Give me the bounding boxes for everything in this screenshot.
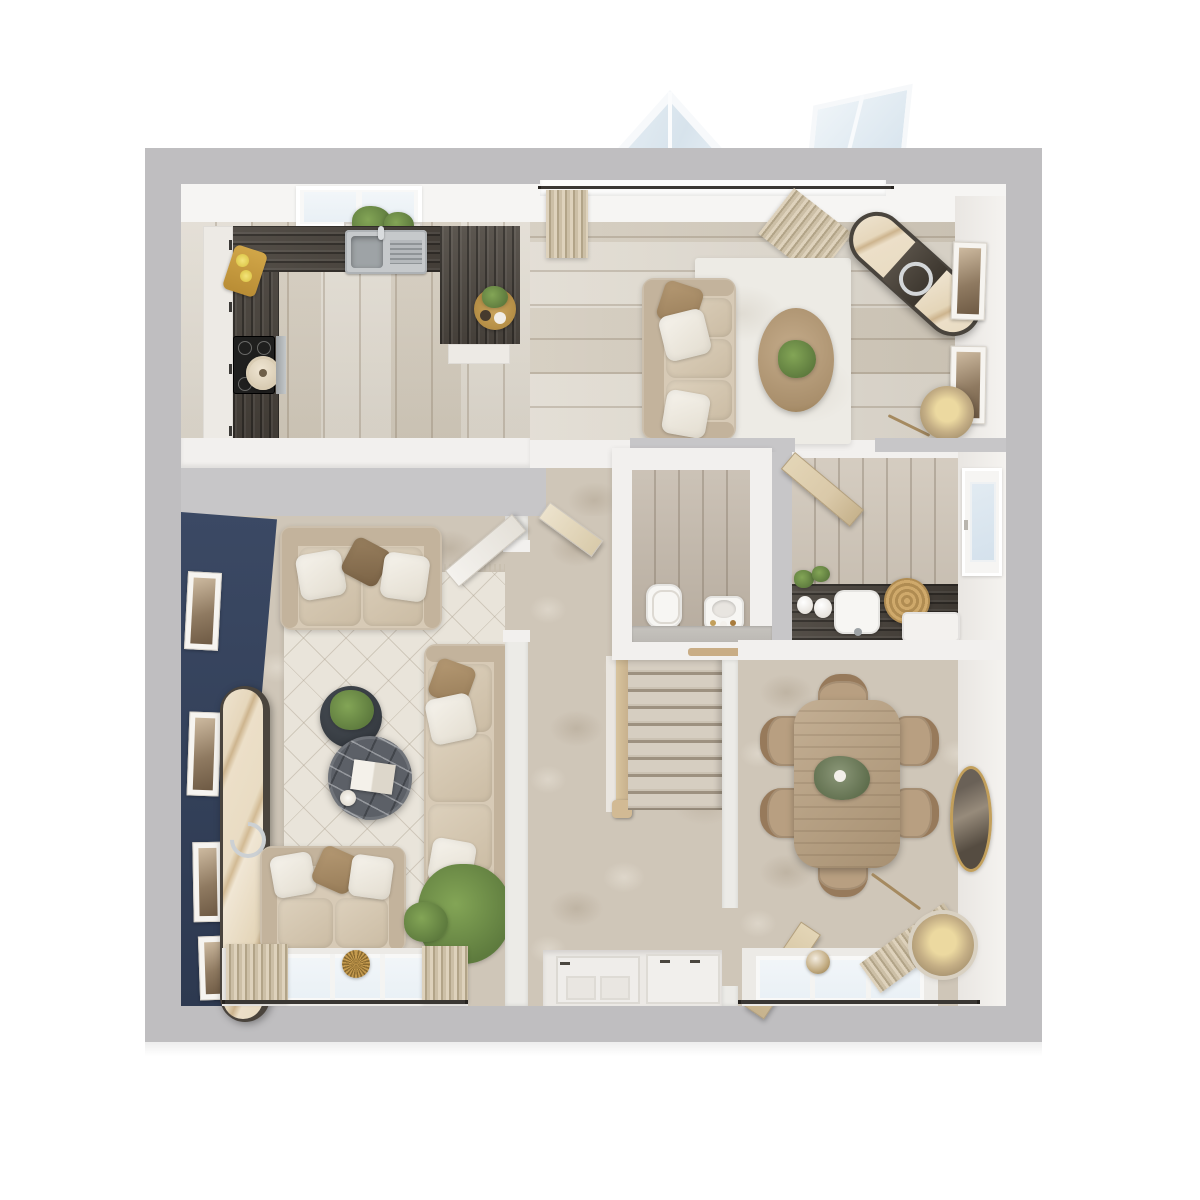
living-sofa-top-arm-left — [282, 528, 298, 628]
family-curtain-left — [546, 190, 588, 258]
family-curtain-rod — [538, 186, 894, 189]
living-door-opening — [505, 552, 528, 630]
living-wall-frame-1-art — [190, 577, 215, 644]
living-curtain-right — [422, 946, 468, 1002]
dining-curtain-rod — [738, 1000, 980, 1004]
living-wall-frame-1 — [184, 571, 222, 651]
utility-vase-1 — [797, 596, 813, 614]
front-door-handle — [560, 962, 570, 965]
living-wall-frame-2 — [187, 711, 222, 796]
living-curtain-rod — [222, 1000, 468, 1004]
front-door-panel-2 — [600, 976, 630, 1000]
hall-cupboard — [646, 954, 720, 1004]
utility-plant-2 — [812, 566, 830, 582]
coffee-table-candle — [340, 790, 356, 806]
utility-sink-faucet — [854, 628, 862, 636]
lemon-slice-1 — [236, 254, 249, 267]
utility-vase-2 — [814, 598, 832, 618]
living-window-mullion-1 — [330, 954, 335, 1002]
living-wall-frame-2-art — [193, 718, 216, 791]
hob-ring-2 — [257, 341, 271, 355]
dining-door-opening — [722, 908, 738, 986]
dining-centrepiece-vase — [834, 770, 846, 782]
kitchen-faucet — [378, 226, 384, 240]
living-sunburst-ornament — [342, 950, 370, 978]
herb-bowl-white — [494, 312, 506, 324]
wall-right — [1006, 148, 1042, 1042]
living-potted-plant-lobe — [404, 902, 448, 942]
hall-cupboard-handle-2 — [690, 960, 700, 963]
living-loveseat-cushion-2 — [335, 898, 388, 948]
staircase — [628, 658, 722, 810]
living-wall-frame-3-art — [198, 848, 217, 916]
living-right-pillow-white-1 — [424, 692, 479, 747]
utility-back-door-glass — [970, 482, 996, 562]
coffee-table-book — [350, 759, 396, 795]
living-top-pillow-right — [379, 551, 431, 603]
plan-drop-shadow — [145, 1042, 1042, 1056]
kitchen-cabinet-end — [448, 344, 510, 364]
family-floor-lamp — [920, 386, 974, 440]
wall-top — [145, 148, 1042, 184]
wc-utility-divider-wall — [772, 452, 792, 660]
utility-plant-1 — [794, 570, 814, 588]
dining-chair-east-2 — [894, 788, 939, 838]
family-table-plant — [778, 340, 816, 378]
living-window-mullion-2 — [380, 954, 385, 1002]
stair-stringer — [606, 656, 616, 812]
stair-handrail — [616, 654, 628, 812]
living-loveseat-cushion-1 — [278, 898, 333, 948]
living-door-jamb-bottom — [503, 630, 530, 642]
dining-top-wall-face — [738, 640, 1006, 660]
wall-left — [145, 148, 181, 1042]
loveseat-pillow-right — [347, 853, 394, 900]
wall-bottom — [145, 1006, 1042, 1042]
dining-mirror — [950, 766, 992, 872]
kitchen-counter-right — [440, 226, 520, 344]
living-top-pillow-left — [294, 548, 347, 601]
dining-chair-east-1 — [894, 716, 939, 766]
hall-cupboard-handle-1 — [660, 960, 670, 963]
living-curtain-left — [226, 944, 288, 1002]
herb-bowl-dark — [480, 310, 491, 321]
living-wall-frame-3 — [192, 842, 223, 923]
front-door-panel-1 — [566, 976, 596, 1000]
kitchen-roof-window-pane-left — [304, 192, 356, 222]
living-side-table-plant — [330, 690, 374, 730]
lemon-slice-2 — [240, 270, 252, 282]
dining-glass-ornament — [806, 950, 830, 974]
family-wall-frame-1 — [951, 241, 988, 320]
stock-pot-knob — [259, 369, 267, 377]
utility-appliance — [902, 612, 960, 642]
dining-floor-lamp — [912, 914, 974, 976]
mid-parapet — [181, 438, 530, 468]
kitchen-sink-bowl — [351, 236, 383, 268]
mid-wall-right-b — [875, 438, 1006, 452]
hob-ring-1 — [238, 341, 252, 355]
loveseat-pillow-left — [269, 851, 318, 900]
family-pillow-white-bottom — [661, 389, 712, 440]
wc-toilet-seat — [652, 590, 680, 624]
kitchen-sink-drainer — [390, 240, 422, 264]
floor-plan-canvas — [0, 0, 1200, 1200]
herb-sprig — [482, 286, 508, 308]
wc-basin-bowl — [712, 600, 736, 618]
family-wall-frame-1-art — [957, 248, 981, 315]
utility-back-door-handle — [964, 520, 968, 530]
steel-splash-panel — [276, 336, 286, 394]
